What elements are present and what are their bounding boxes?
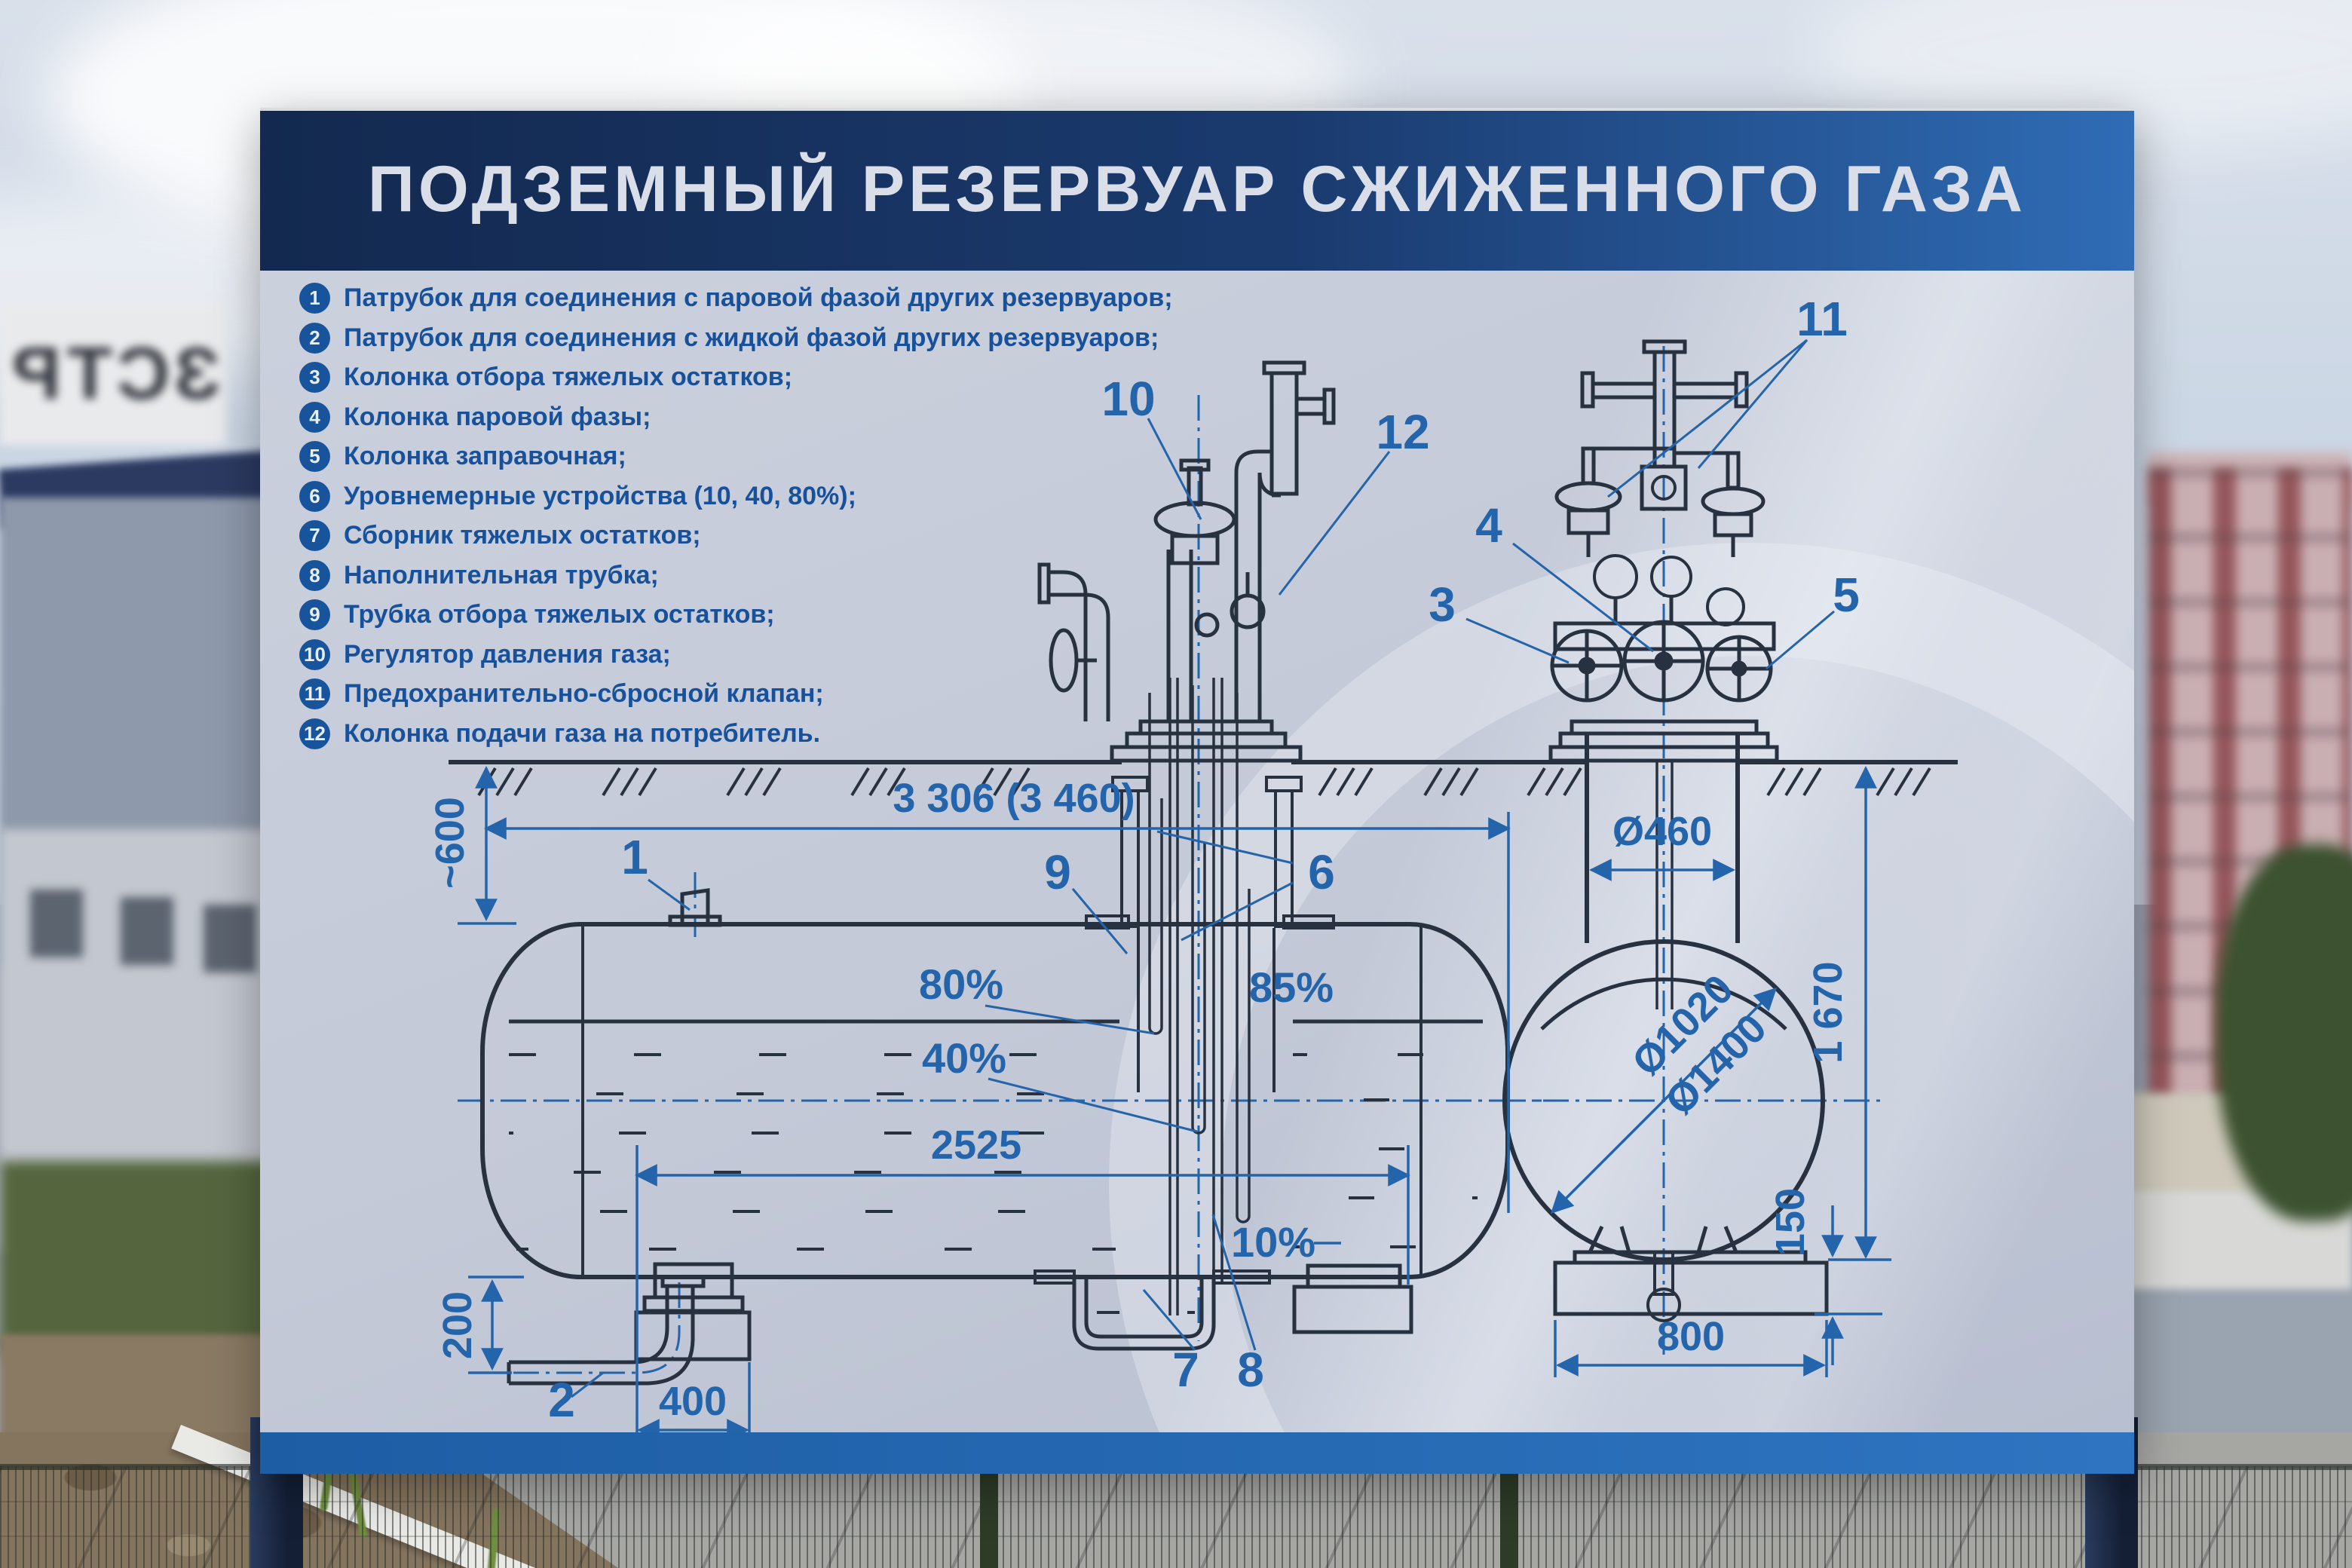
legend-number-badge: 2 — [299, 323, 330, 354]
ground-line — [449, 762, 1958, 795]
legend-item: 1Патрубок для соединения с паровой фазой… — [299, 283, 1173, 314]
dim-end-height: 1 670 — [1805, 961, 1851, 1063]
legend-number-badge: 3 — [299, 362, 330, 393]
dim-outlet-drop: 200 — [435, 1291, 480, 1359]
legend-item: 2Патрубок для соединения с жидкой фазой … — [299, 323, 1173, 354]
legend-text: Колонка подачи газа на потребитель. — [344, 719, 820, 749]
window — [30, 890, 83, 957]
legend-item: 12Колонка подачи газа на потребитель. — [299, 718, 1173, 749]
dim-neck-diameter: Ø460 — [1612, 809, 1712, 854]
legend-text: Патрубок для соединения с паровой фазой … — [344, 283, 1173, 313]
legend-number-badge: 5 — [299, 441, 330, 472]
callout-12: 12 — [1376, 405, 1429, 459]
callout-6: 6 — [1308, 845, 1335, 899]
callout-2: 2 — [548, 1373, 575, 1427]
legend-number-badge: 4 — [299, 402, 330, 433]
handwheel — [1552, 631, 1622, 700]
board-header: ПОДЗЕМНЫЙ РЕЗЕРВУАР СЖИЖЕННОГО ГАЗА — [260, 108, 2134, 271]
legend-text: Регулятор давления газа; — [344, 640, 671, 669]
level-40: 40% — [922, 1034, 1006, 1082]
legend-text: Уровнемерные устройства (10, 40, 80%); — [344, 482, 856, 511]
callout-5: 5 — [1833, 568, 1860, 622]
legend-item: 7Сборник тяжелых остатков; — [299, 520, 1173, 551]
liquid-phase-outlet — [509, 1277, 703, 1383]
dim-overall-length: 3 306 (3 460) — [893, 776, 1135, 821]
legend-text: Сборник тяжелых остатков; — [344, 521, 701, 550]
legend-item: 5Колонка заправочная; — [299, 441, 1173, 472]
board-title: ПОДЗЕМНЫЙ РЕЗЕРВУАР СЖИЖЕННОГО ГАЗА — [260, 111, 2134, 268]
fence-post — [980, 1464, 998, 1568]
legend-text: Колонка паровой фазы; — [344, 403, 651, 432]
background-left-buildings: ЗСТР — [0, 407, 271, 1568]
legend-text: Трубка отбора тяжелых остатков; — [344, 600, 775, 629]
callout-7: 7 — [1172, 1343, 1199, 1397]
background-right-buildings — [2126, 0, 2352, 1568]
callout-1: 1 — [621, 830, 648, 884]
level-80: 80% — [919, 960, 1003, 1008]
callout-3: 3 — [1429, 577, 1456, 632]
legend-text: Колонка заправочная; — [344, 442, 626, 471]
handwheel — [1707, 637, 1771, 700]
photo-scene: ЗСТР ПОДЗЕМНЫЙ РЕЗЕРВУАР СЖИЖЕННОГО ГАЗА — [0, 0, 2352, 1568]
legend-item: 11Предохранительно-сбросной клапан; — [299, 678, 1173, 709]
information-board: ПОДЗЕМНЫЙ РЕЗЕРВУАР СЖИЖЕННОГО ГАЗА 1Пат… — [260, 108, 2134, 1471]
legend-text: Наполнительная трубка; — [344, 561, 659, 590]
callout-9: 9 — [1044, 845, 1071, 899]
legend-number-badge: 11 — [299, 678, 330, 709]
level-85: 85% — [1249, 963, 1334, 1011]
dim-support-width: 400 — [659, 1379, 727, 1424]
legend-text: Колонка отбора тяжелых остатков; — [344, 363, 792, 392]
legend-item: 4Колонка паровой фазы; — [299, 402, 1173, 433]
hedge — [0, 1161, 271, 1357]
dim-cylinder-length: 2525 — [931, 1122, 1021, 1168]
dim-depth: ~600 — [427, 797, 473, 889]
callout-4: 4 — [1475, 498, 1502, 553]
window — [121, 897, 173, 965]
legend-text: Патрубок для соединения с жидкой фазой д… — [344, 323, 1159, 353]
legend-number-badge: 10 — [299, 639, 330, 670]
legend-text: Предохранительно-сбросной клапан; — [344, 679, 824, 709]
legend-item: 3Колонка отбора тяжелых остатков; — [299, 362, 1173, 393]
legend-number-badge: 7 — [299, 520, 330, 551]
legend-number-badge: 6 — [299, 481, 330, 512]
callout-11: 11 — [1796, 292, 1848, 346]
board-body: 1Патрубок для соединения с паровой фазой… — [260, 271, 2134, 1432]
window — [204, 905, 256, 972]
legend-number-badge: 8 — [299, 560, 330, 591]
legend-item: 10Регулятор давления газа; — [299, 639, 1173, 670]
rooftop-sign: ЗСТР — [0, 302, 226, 445]
legend-number-badge: 12 — [299, 718, 330, 749]
fence-post — [1500, 1464, 1518, 1568]
legend-number-badge: 9 — [299, 599, 330, 630]
legend-list: 1Патрубок для соединения с паровой фазой… — [299, 283, 1173, 758]
dim-foundation-width: 800 — [1657, 1314, 1725, 1359]
legend-item: 9Трубка отбора тяжелых остатков; — [299, 599, 1173, 630]
legend-number-badge: 1 — [299, 283, 330, 314]
callout-8: 8 — [1237, 1343, 1264, 1397]
tank-end-view — [1505, 942, 1827, 1321]
dim-foundation-height: 150 — [1768, 1188, 1813, 1256]
legend-item: 8Наполнительная трубка; — [299, 560, 1173, 591]
level-10: 10% — [1231, 1218, 1315, 1266]
mesh-fence — [0, 1466, 2352, 1568]
legend-item: 6Уровнемерные устройства (10, 40, 80%); — [299, 481, 1173, 512]
board-footer-band — [260, 1432, 2134, 1474]
handwheel — [1625, 622, 1703, 700]
